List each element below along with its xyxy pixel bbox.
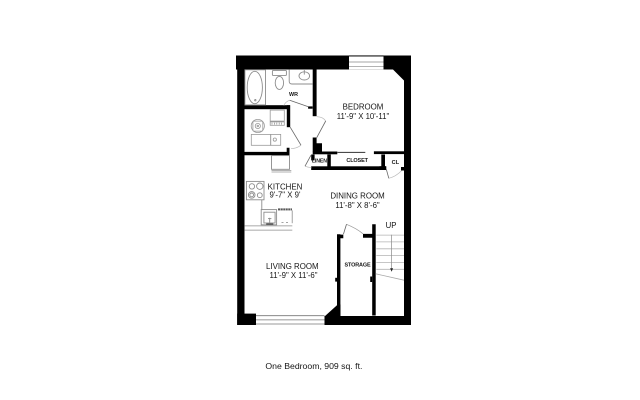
svg-text:BEDROOM: BEDROOM (343, 102, 384, 111)
svg-text:STORAGE: STORAGE (344, 262, 371, 268)
svg-text:CL: CL (392, 160, 400, 166)
svg-text:One Bedroom, 909 sq. ft.: One Bedroom, 909 sq. ft. (265, 361, 362, 371)
svg-text:11'-9" X 11'-6": 11'-9" X 11'-6" (269, 271, 317, 280)
svg-text:CLOSET: CLOSET (346, 158, 368, 164)
svg-text:11'-8" X 8'-6": 11'-8" X 8'-6" (335, 201, 380, 210)
svg-text:11'-9" X 10'-11": 11'-9" X 10'-11" (337, 112, 390, 121)
svg-text:9'-7" X 9': 9'-7" X 9' (270, 190, 301, 199)
svg-text:LIVING ROOM: LIVING ROOM (266, 262, 319, 271)
svg-text:DINING ROOM: DINING ROOM (330, 192, 384, 201)
svg-text:WR: WR (289, 92, 298, 98)
svg-text:UP: UP (386, 221, 397, 230)
svg-text:LINEN: LINEN (312, 158, 327, 164)
